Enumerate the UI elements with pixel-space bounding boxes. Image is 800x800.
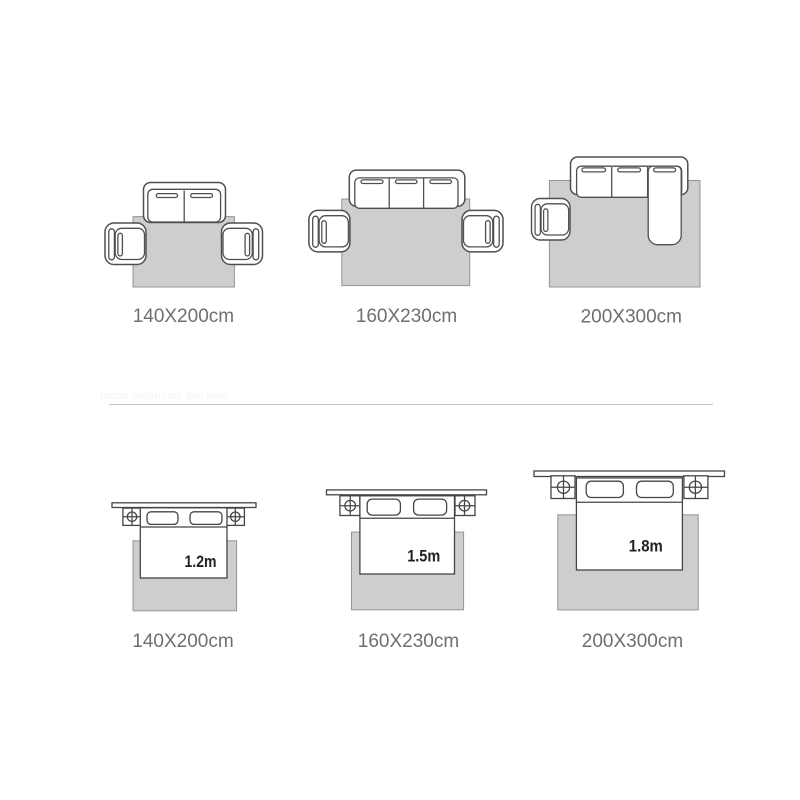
svg-text:200X300cm: 200X300cm [581, 306, 682, 327]
svg-text:brand watermark text here: brand watermark text here [100, 390, 228, 402]
svg-text:160X230cm: 160X230cm [356, 306, 457, 327]
svg-text:160X230cm: 160X230cm [358, 631, 459, 652]
svg-text:1.5m: 1.5m [407, 548, 440, 566]
svg-text:1.2m: 1.2m [185, 553, 217, 571]
svg-text:140X200cm: 140X200cm [133, 306, 234, 327]
svg-text:1.8m: 1.8m [629, 538, 663, 556]
svg-text:140X200cm: 140X200cm [132, 631, 233, 652]
svg-text:200X300cm: 200X300cm [582, 631, 683, 652]
